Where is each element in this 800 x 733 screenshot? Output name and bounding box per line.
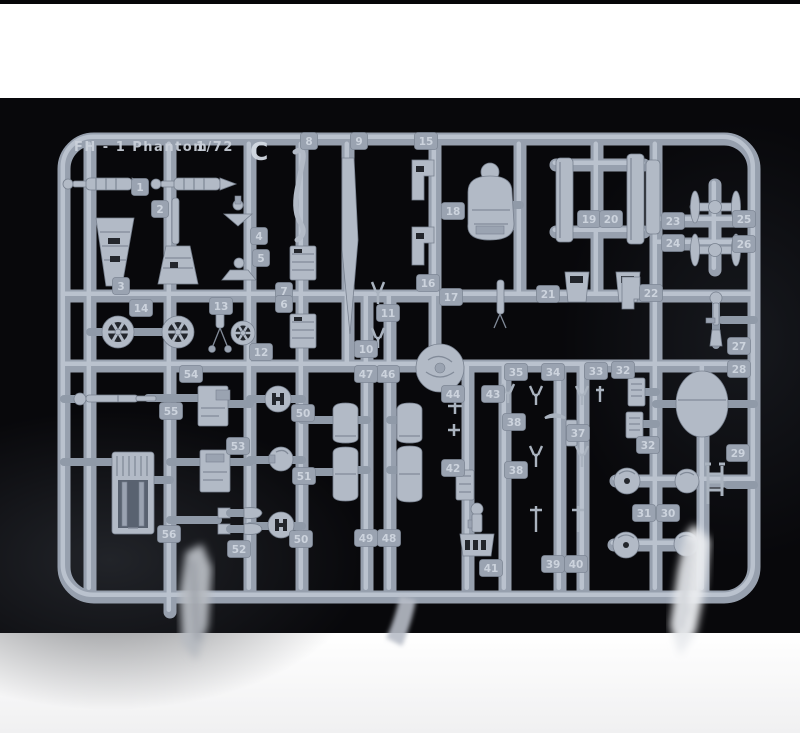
part-number-tag: 5 (253, 250, 270, 267)
top-edge-strip (0, 0, 800, 4)
part-number-tag: 43 (482, 386, 505, 403)
part-number-tag: 47 (355, 366, 378, 383)
svg-text:40: 40 (569, 559, 584, 571)
part-oval-door (676, 371, 728, 437)
part-number-tag: 31 (633, 505, 656, 522)
part-number-tag: 19 (578, 211, 601, 228)
part-number-tag: 15 (415, 133, 438, 150)
part-cockpit-tub (112, 452, 154, 534)
part-number-tag: 9 (351, 133, 368, 150)
svg-text:32: 32 (641, 440, 656, 452)
part-number-tag: 24 (662, 235, 685, 252)
svg-text:49: 49 (359, 533, 374, 545)
svg-text:47: 47 (359, 369, 374, 381)
part-number-tag: 20 (600, 211, 623, 228)
svg-text:29: 29 (731, 448, 746, 460)
svg-text:39: 39 (546, 559, 561, 571)
part-number-tag: 53 (227, 438, 250, 455)
part-grooved-box (290, 314, 316, 348)
svg-text:51: 51 (297, 471, 312, 483)
svg-text:48: 48 (382, 533, 397, 545)
svg-text:56: 56 (162, 529, 177, 541)
svg-text:44: 44 (446, 389, 461, 401)
svg-text:25: 25 (737, 214, 752, 226)
part-number-tag: 13 (210, 298, 233, 315)
part-number-tag: 35 (505, 364, 528, 381)
part-number-tag: 34 (542, 364, 565, 381)
svg-text:38: 38 (509, 465, 524, 477)
svg-text:50: 50 (294, 534, 309, 546)
svg-text:34: 34 (546, 367, 561, 379)
svg-text:2: 2 (156, 204, 163, 216)
sprue-scale-text: 1/72 (196, 140, 234, 155)
svg-text:1: 1 (136, 182, 143, 194)
part-number-tag: 2 (152, 201, 169, 218)
sprue-title-text: FH - 1 Phantom (74, 140, 208, 155)
part-number-tag: 50 (292, 405, 315, 422)
part-number-tag: 37 (567, 425, 590, 442)
part-number-tag: 38 (503, 414, 526, 431)
part-number-tag: 38 (505, 462, 528, 479)
part-number-tag: 26 (733, 236, 756, 253)
svg-text:42: 42 (446, 463, 461, 475)
svg-text:27: 27 (732, 341, 747, 353)
svg-text:43: 43 (486, 389, 501, 401)
svg-text:11: 11 (381, 308, 396, 320)
svg-text:30: 30 (661, 508, 676, 520)
svg-text:52: 52 (232, 544, 247, 556)
part-number-tag: 49 (355, 530, 378, 547)
part-number-tag: 27 (728, 338, 751, 355)
part-hub-disc (265, 386, 291, 412)
part-number-tag: 22 (640, 285, 663, 302)
svg-text:6: 6 (280, 299, 287, 311)
svg-text:55: 55 (164, 406, 179, 418)
svg-text:8: 8 (305, 136, 312, 148)
part-number-tag: 6 (276, 296, 293, 313)
svg-text:50: 50 (296, 408, 311, 420)
svg-text:12: 12 (254, 347, 269, 359)
svg-text:20: 20 (604, 214, 619, 226)
svg-text:38: 38 (507, 417, 522, 429)
sprue-photo-canvas: 1234576891011121314151617181920212223242… (0, 0, 800, 733)
svg-text:28: 28 (732, 364, 747, 376)
part-number-tag: 12 (250, 344, 273, 361)
part-number-tag: 21 (537, 286, 560, 303)
svg-text:41: 41 (484, 563, 499, 575)
svg-text:17: 17 (444, 292, 459, 304)
part-wheel (102, 316, 134, 348)
svg-text:37: 37 (571, 428, 586, 440)
part-number-tag: 28 (728, 361, 751, 378)
part-number-tag: 1 (132, 179, 149, 196)
svg-text:3: 3 (117, 281, 124, 293)
model-kit-sprue-photo: 1234576891011121314151617181920212223242… (0, 0, 800, 733)
part-number-tag: 25 (733, 211, 756, 228)
svg-text:5: 5 (257, 253, 264, 265)
svg-text:35: 35 (509, 367, 524, 379)
part-number-tag: 30 (657, 505, 680, 522)
part-number-tag: 39 (542, 556, 565, 573)
part-number-tag: 17 (440, 289, 463, 306)
svg-text:26: 26 (737, 239, 752, 251)
part-number-tag: 46 (377, 366, 400, 383)
part-number-tag: 55 (160, 403, 183, 420)
part-grooved-box (290, 246, 316, 280)
part-number-tag: 40 (565, 556, 588, 573)
sprue-letter-text: C (250, 137, 268, 166)
svg-text:13: 13 (214, 301, 229, 313)
part-side-slab (646, 160, 660, 234)
part-number-tag: 33 (585, 363, 608, 380)
svg-text:31: 31 (637, 508, 652, 520)
svg-text:19: 19 (582, 214, 597, 226)
part-number-tag: 23 (662, 213, 685, 230)
part-number-tag: 32 (637, 437, 660, 454)
part-number-tag: 10 (355, 341, 378, 358)
part-hub-disc (269, 447, 293, 471)
part-number-tag: 48 (378, 530, 401, 547)
part-number-tag: 14 (130, 300, 153, 317)
part-number-tag: 16 (417, 275, 440, 292)
svg-text:18: 18 (446, 206, 461, 218)
svg-text:32: 32 (616, 365, 631, 377)
part-spinner-disc (416, 344, 464, 392)
svg-text:23: 23 (666, 216, 681, 228)
part-number-tag: 41 (480, 560, 503, 577)
svg-text:24: 24 (666, 238, 681, 250)
part-wheel (162, 316, 194, 348)
svg-text:33: 33 (589, 366, 604, 378)
part-number-tag: 8 (301, 133, 318, 150)
svg-text:4: 4 (255, 231, 262, 243)
svg-text:54: 54 (184, 369, 199, 381)
part-number-tag: 42 (442, 460, 465, 477)
part-number-tag: 3 (113, 278, 130, 295)
svg-text:14: 14 (134, 303, 149, 315)
svg-text:9: 9 (355, 136, 362, 148)
part-number-tag: 44 (442, 386, 465, 403)
part-number-tag: 29 (727, 445, 750, 462)
svg-text:22: 22 (644, 288, 659, 300)
svg-text:10: 10 (359, 344, 374, 356)
part-number-tag: 56 (158, 526, 181, 543)
part-number-tag: 11 (377, 305, 400, 322)
svg-text:16: 16 (421, 278, 436, 290)
part-wheel (231, 321, 255, 345)
part-number-tag: 52 (228, 541, 251, 558)
part-number-tag: 51 (293, 468, 316, 485)
svg-text:53: 53 (231, 441, 246, 453)
svg-text:15: 15 (419, 136, 434, 148)
part-number-tag: 54 (180, 366, 203, 383)
part-number-tag: 18 (442, 203, 465, 220)
svg-text:21: 21 (541, 289, 556, 301)
part-number-tag: 32 (612, 362, 635, 379)
part-number-tag: 50 (290, 531, 313, 548)
part-number-tag: 4 (251, 228, 268, 245)
svg-text:46: 46 (381, 369, 396, 381)
